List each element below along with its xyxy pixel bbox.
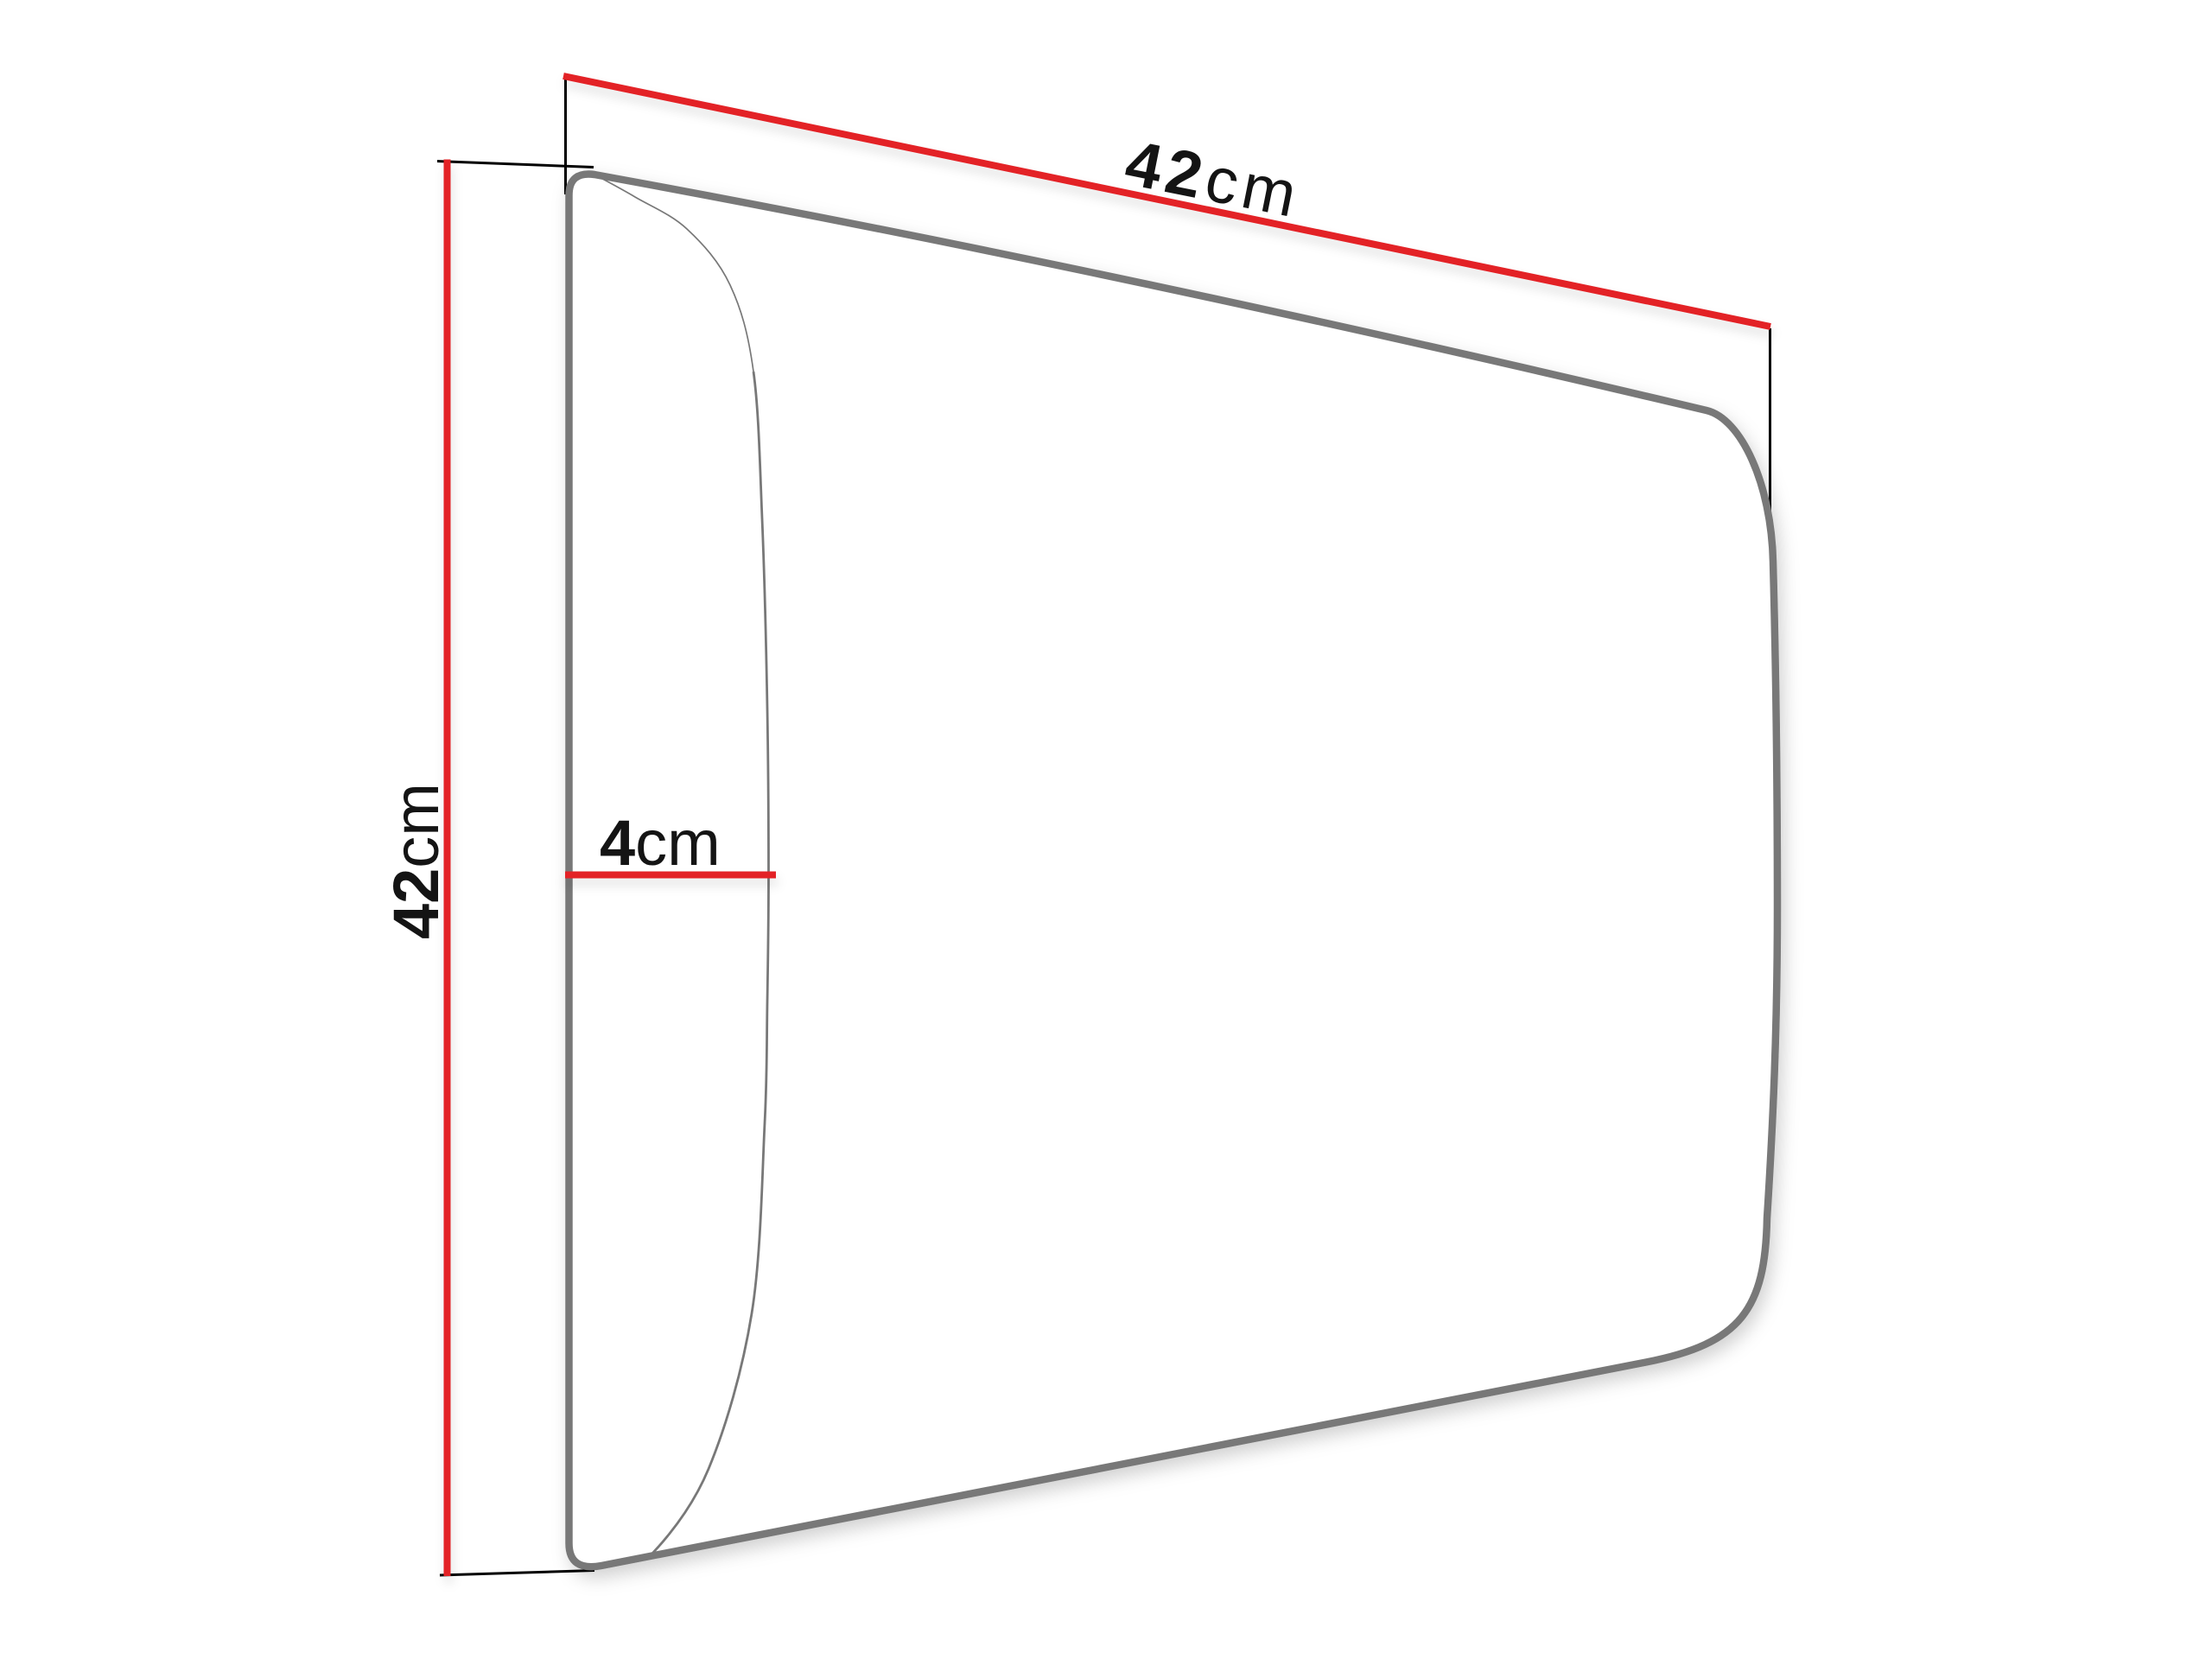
svg-text:42cm: 42cm bbox=[1120, 126, 1307, 232]
svg-text:42cm: 42cm bbox=[380, 783, 452, 939]
svg-text:4cm: 4cm bbox=[600, 807, 721, 879]
